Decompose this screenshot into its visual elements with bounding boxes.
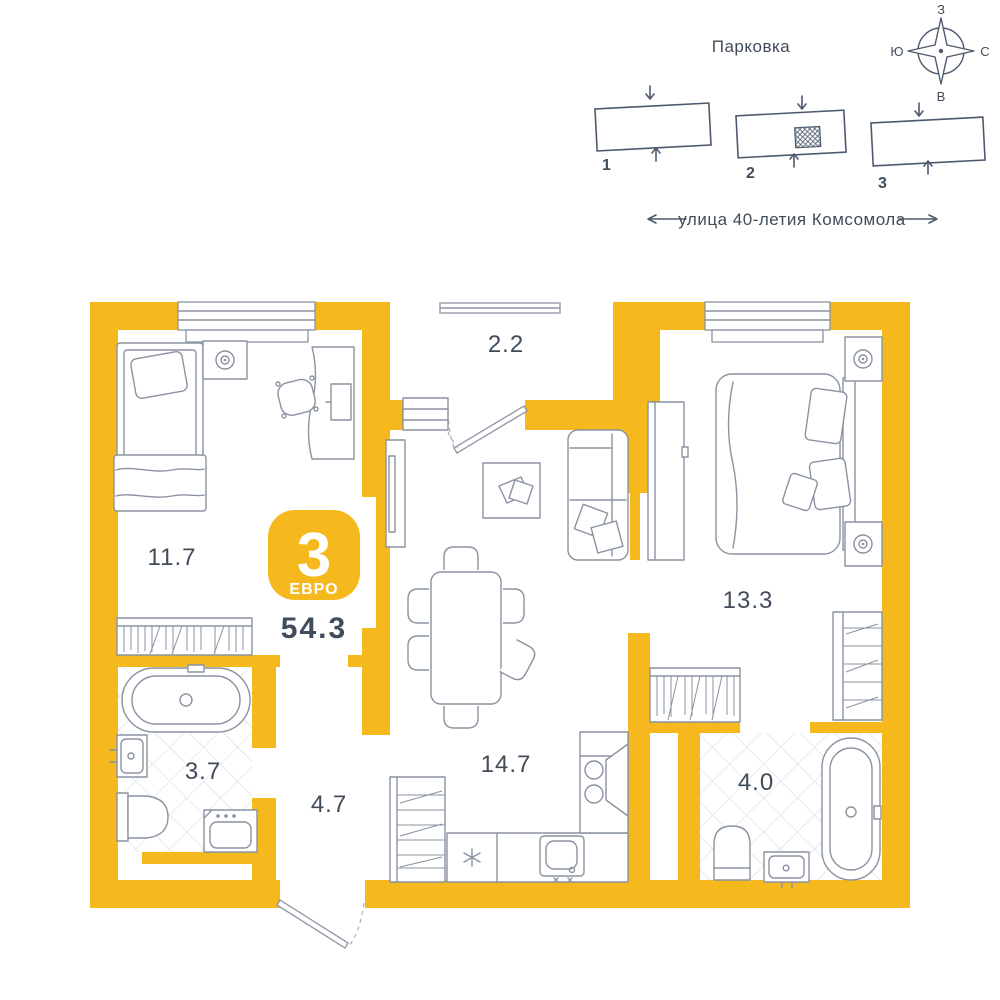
current-location-marker: [795, 126, 821, 147]
coffee-table: [483, 463, 540, 518]
double-bed: [716, 374, 855, 554]
bedroom-1-furniture: [114, 341, 354, 655]
washing-machine: [204, 810, 257, 852]
room-label-bedroom-2: 13.3: [723, 587, 774, 614]
closet-niche-wardrobe: [650, 668, 740, 722]
floor-plan-canvas: Парковка З Ю С В 1 2: [0, 0, 1000, 1000]
room-label-bedroom-1: 11.7: [148, 544, 197, 571]
balcony-cabinet: [403, 398, 458, 448]
badge-rooms-count: 3: [297, 521, 331, 590]
compass-south-label: Ю: [890, 44, 903, 59]
site-building-2-current: [736, 110, 846, 158]
building-1-entry-arrow-bottom: [652, 148, 660, 161]
pantry-cabinet: [390, 777, 445, 882]
kitchen-counter: [447, 833, 628, 882]
compass-rose-icon: З Ю С В: [890, 2, 989, 104]
building-2-entry-arrow-top: [798, 96, 806, 109]
building-1-entry-arrow-top: [646, 86, 654, 99]
bathtub-1: [122, 665, 250, 732]
compass-west-label: З: [937, 2, 945, 17]
room-label-hallway: 4.7: [311, 791, 347, 818]
single-bed: [114, 343, 206, 511]
building-2-entry-arrow-bottom: [790, 154, 798, 167]
window-balcony: [440, 303, 560, 313]
sofa: [568, 430, 628, 560]
dining-table: [431, 572, 501, 704]
kitchen-sink: [540, 836, 584, 882]
toilet-1: [117, 793, 168, 841]
compass-east-label: В: [937, 89, 946, 104]
parking-title: Парковка: [712, 37, 791, 56]
street-name: улица 40-летия Комсомола: [678, 210, 905, 229]
bedroom-2-furniture: [648, 337, 882, 722]
nightstand-lamp: [203, 341, 247, 379]
compass-north-label: С: [980, 44, 989, 59]
window-bedroom-2: [705, 302, 830, 342]
building-3-label: 3: [878, 175, 887, 192]
entrance-door: [277, 900, 364, 948]
kitchen-living-furniture: [386, 398, 628, 882]
apartment-type-badge: 3 ЕВРО 54.3: [268, 510, 360, 645]
room-label-bathroom-1: 3.7: [185, 758, 221, 785]
wardrobe-bedroom-1: [117, 618, 252, 655]
stove-unit: [580, 732, 628, 833]
tall-wardrobe-east: [833, 612, 882, 720]
site-building-3: [871, 117, 985, 166]
nightstand-lamp-bottom: [845, 522, 882, 566]
badge-layout-type: ЕВРО: [289, 581, 338, 598]
wardrobe-bedroom-2: [648, 402, 688, 560]
sink-2: [764, 852, 809, 888]
apartment-plan: 11.7 2.2 13.3 3.7 4.7 14.7 4.0 3 ЕВРО 54…: [90, 302, 910, 948]
total-area-value: 54.3: [281, 612, 347, 645]
site-plan: Парковка З Ю С В 1 2: [595, 2, 990, 229]
bathtub-2: [822, 738, 881, 880]
site-building-1: [595, 103, 711, 151]
window-bedroom-1: [178, 302, 315, 342]
building-2-label: 2: [746, 165, 755, 182]
room-label-balcony: 2.2: [488, 331, 524, 358]
building-1-label: 1: [602, 157, 611, 174]
nightstand-lamp-top: [845, 337, 882, 381]
balcony-door: [448, 406, 527, 453]
building-3-entry-arrow-top: [915, 103, 923, 116]
toilet-2: [714, 826, 750, 880]
street-row: улица 40-летия Комсомола: [648, 210, 937, 229]
floor-plan-page: Парковка З Ю С В 1 2: [0, 0, 1000, 1000]
room-label-kitchen-living: 14.7: [481, 751, 532, 778]
room-label-bathroom-2: 4.0: [738, 769, 774, 796]
tv-stand: [386, 440, 405, 547]
